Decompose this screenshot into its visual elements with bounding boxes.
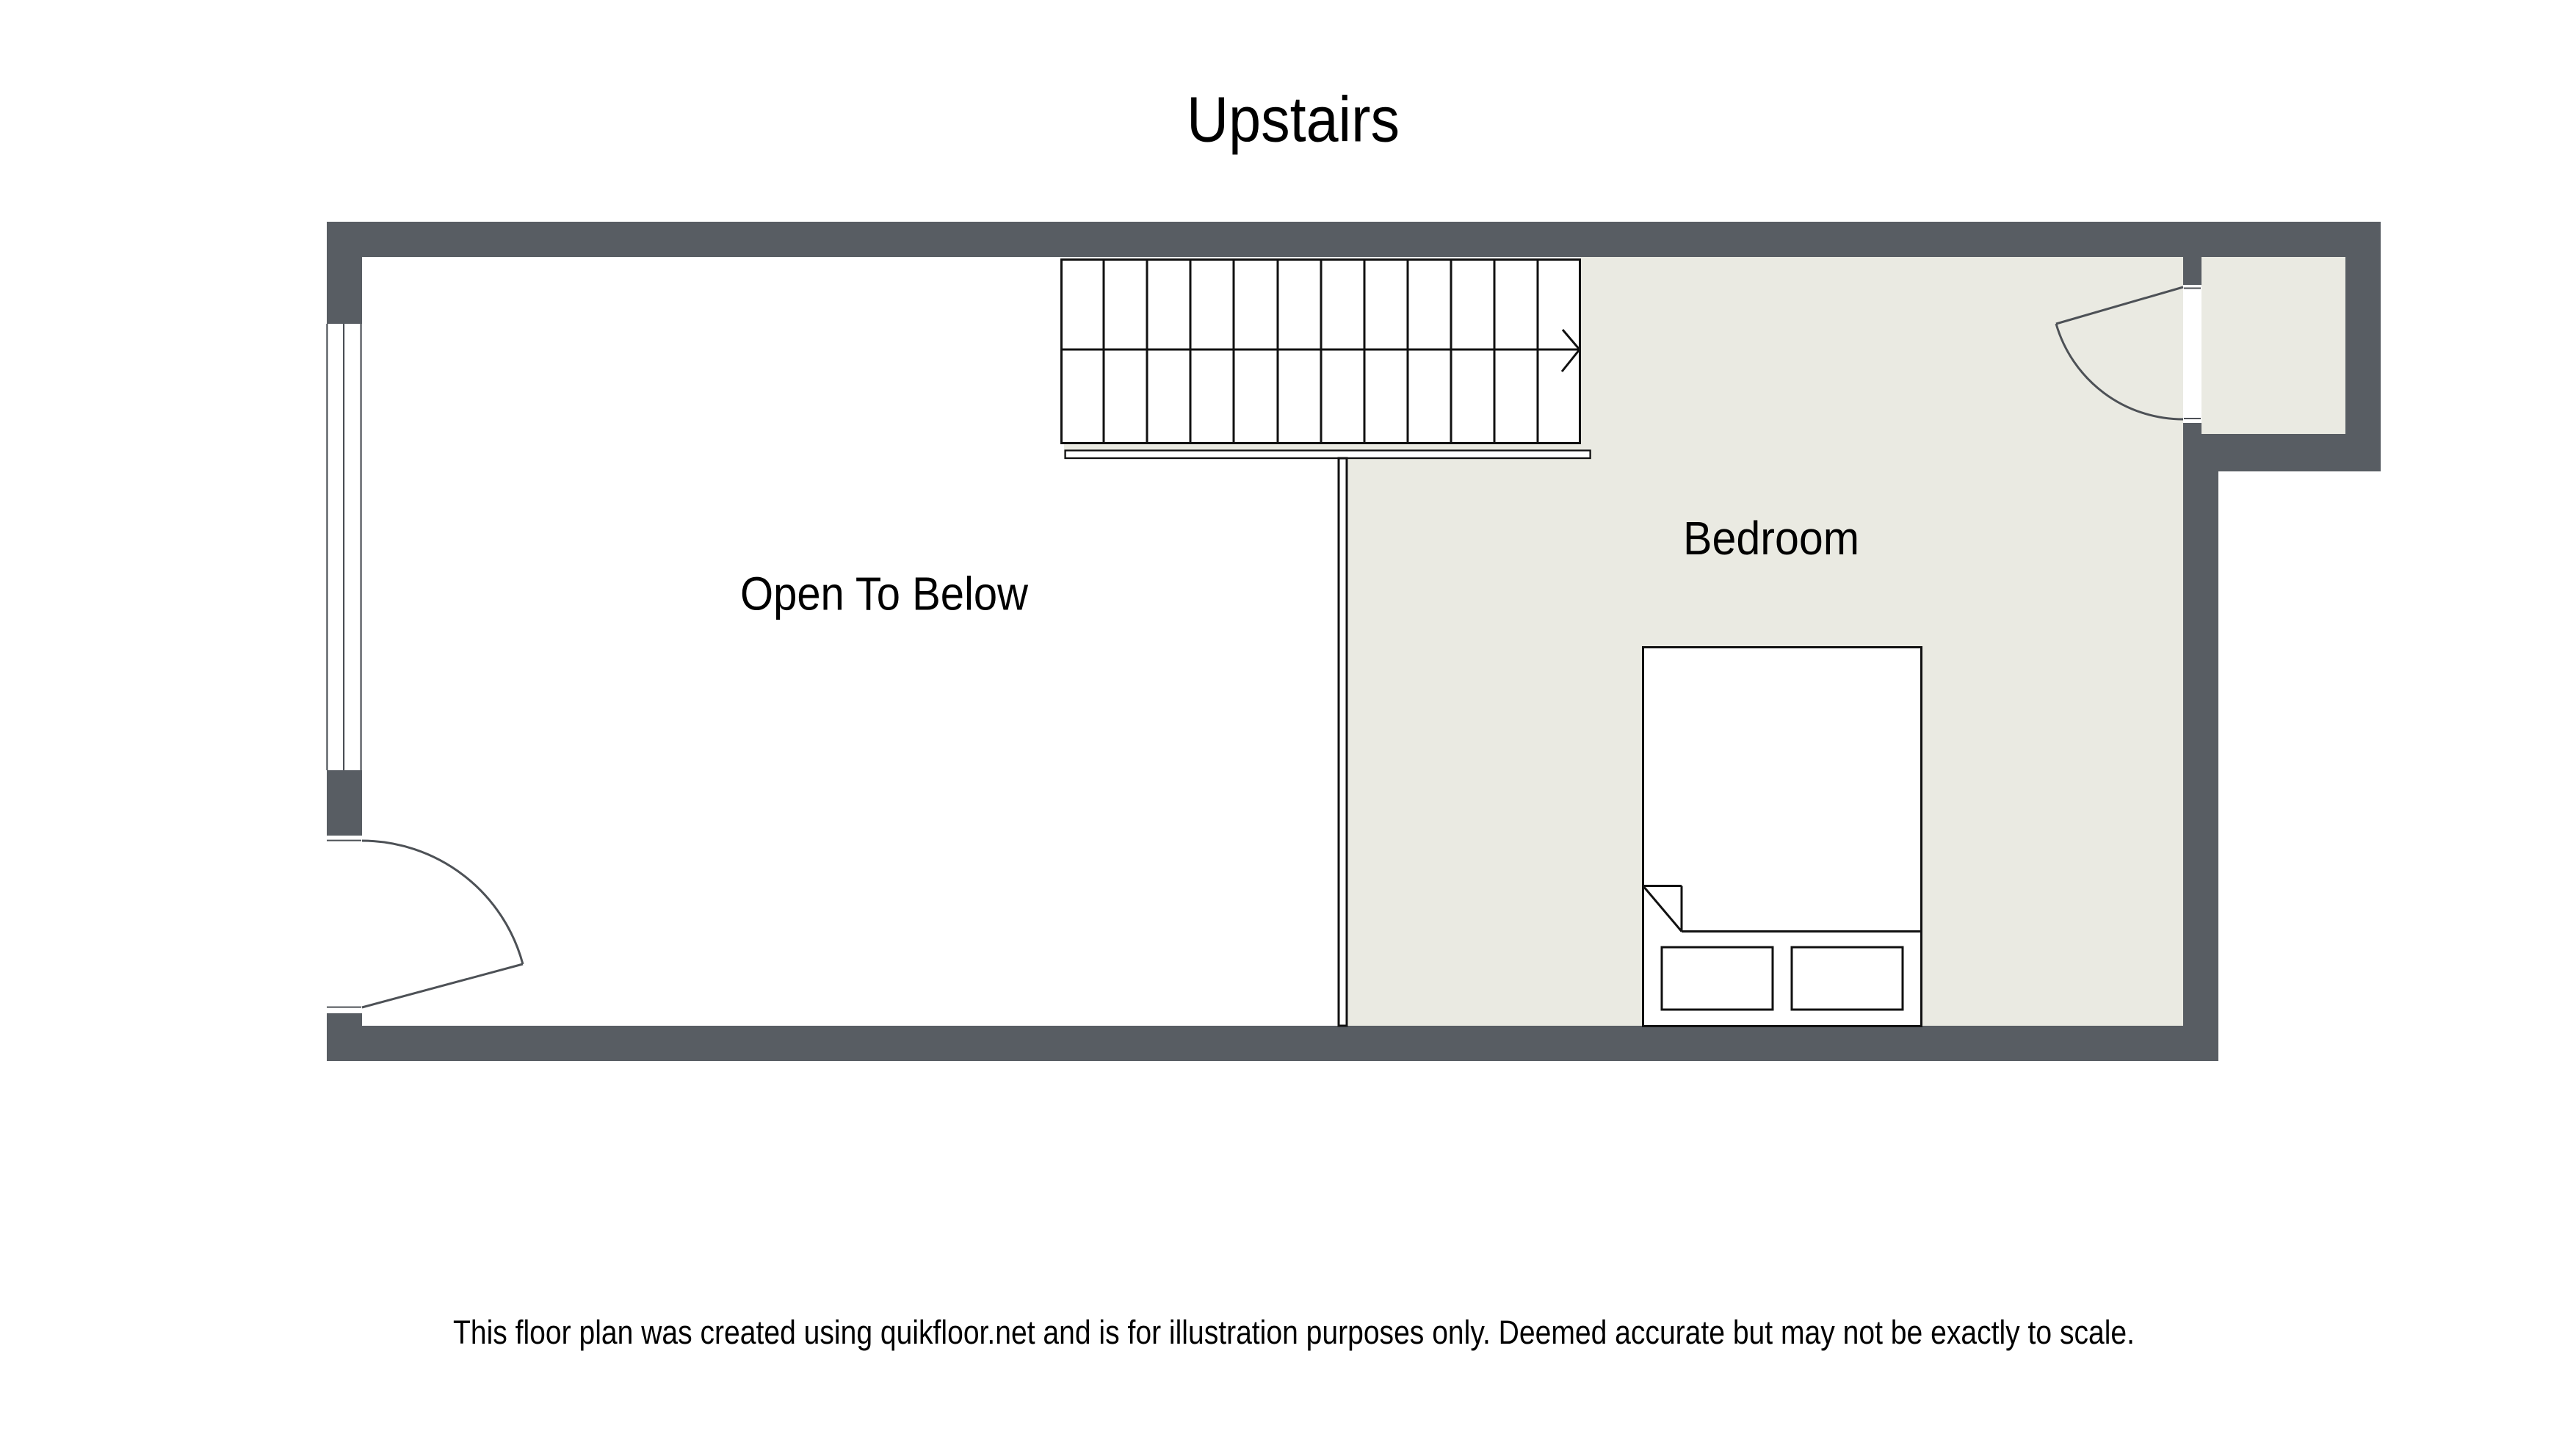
svg-text:Open To Below: Open To Below: [740, 568, 1029, 620]
svg-text:Upstairs: Upstairs: [1187, 84, 1400, 156]
svg-text:Bedroom: Bedroom: [1683, 512, 1859, 565]
svg-text:This floor plan was created us: This floor plan was created using quikfl…: [453, 1314, 2135, 1351]
